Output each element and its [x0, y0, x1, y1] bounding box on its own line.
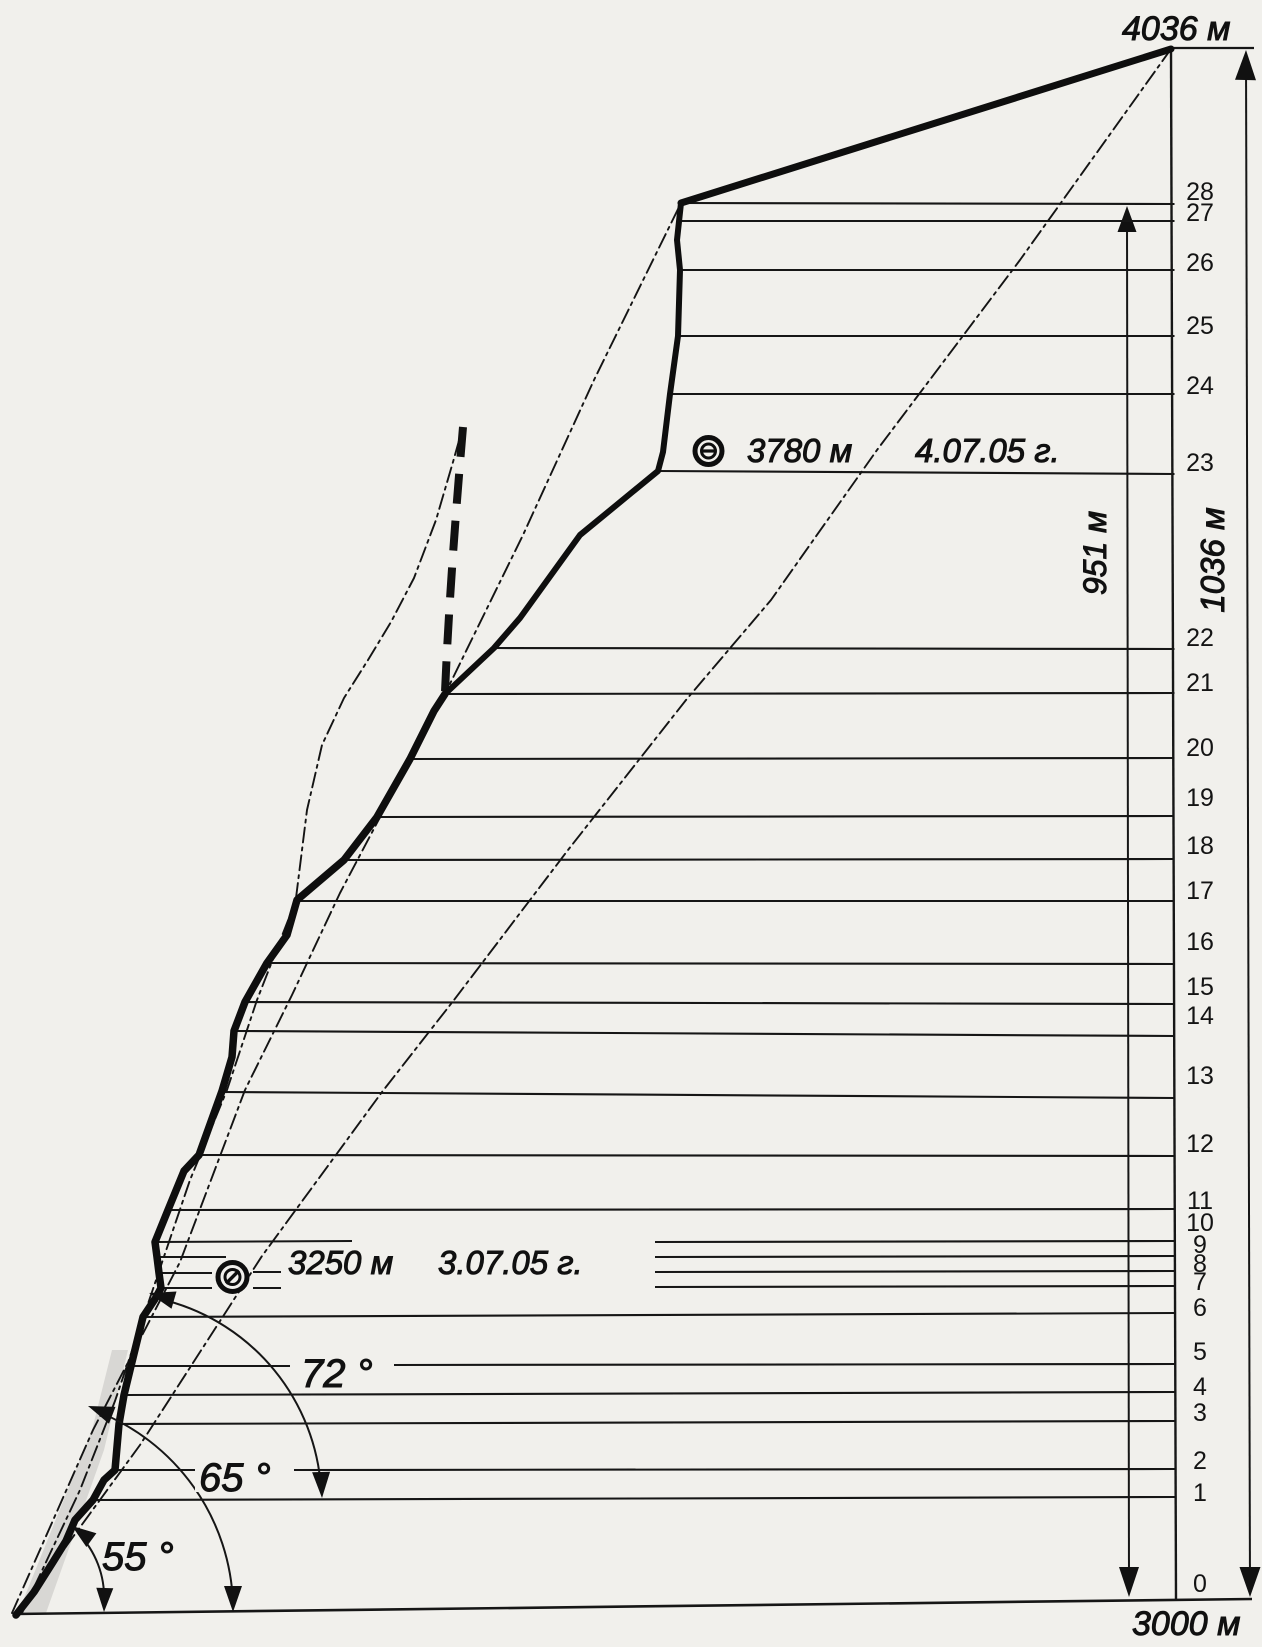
svg-text:7: 7 — [1193, 1268, 1207, 1296]
svg-text:4036 м: 4036 м — [1122, 10, 1230, 48]
svg-text:27: 27 — [1186, 199, 1214, 227]
svg-text:26: 26 — [1186, 249, 1214, 277]
svg-text:3.07.05 г.: 3.07.05 г. — [438, 1244, 583, 1281]
svg-text:2: 2 — [1193, 1447, 1207, 1475]
svg-text:3780 м: 3780 м — [747, 432, 852, 469]
svg-text:72 °: 72 ° — [301, 1352, 373, 1396]
svg-text:18: 18 — [1186, 832, 1214, 860]
svg-text:20: 20 — [1186, 734, 1214, 762]
svg-text:22: 22 — [1186, 624, 1214, 652]
svg-text:1036 м: 1036 м — [1194, 507, 1231, 612]
svg-text:15: 15 — [1186, 973, 1214, 1001]
svg-text:17: 17 — [1186, 877, 1214, 905]
svg-text:16: 16 — [1186, 928, 1214, 956]
svg-text:3000 м: 3000 м — [1132, 1605, 1240, 1643]
svg-text:23: 23 — [1186, 449, 1214, 477]
svg-text:0: 0 — [1193, 1570, 1207, 1598]
svg-text:14: 14 — [1186, 1002, 1214, 1030]
svg-text:12: 12 — [1186, 1130, 1214, 1158]
svg-text:24: 24 — [1186, 372, 1214, 400]
svg-text:65 °: 65 ° — [199, 1456, 271, 1500]
svg-text:5: 5 — [1193, 1338, 1207, 1366]
svg-text:13: 13 — [1186, 1062, 1214, 1090]
svg-text:3250 м: 3250 м — [288, 1244, 393, 1281]
svg-text:25: 25 — [1186, 312, 1214, 340]
svg-text:4: 4 — [1193, 1373, 1207, 1401]
svg-text:1: 1 — [1193, 1479, 1207, 1507]
svg-text:6: 6 — [1193, 1294, 1207, 1322]
svg-text:21: 21 — [1186, 669, 1214, 697]
svg-text:951 м: 951 м — [1077, 511, 1113, 595]
svg-text:4.07.05 г.: 4.07.05 г. — [915, 432, 1060, 469]
svg-text:55 °: 55 ° — [102, 1535, 174, 1579]
svg-text:19: 19 — [1186, 784, 1214, 812]
svg-text:3: 3 — [1193, 1399, 1207, 1427]
